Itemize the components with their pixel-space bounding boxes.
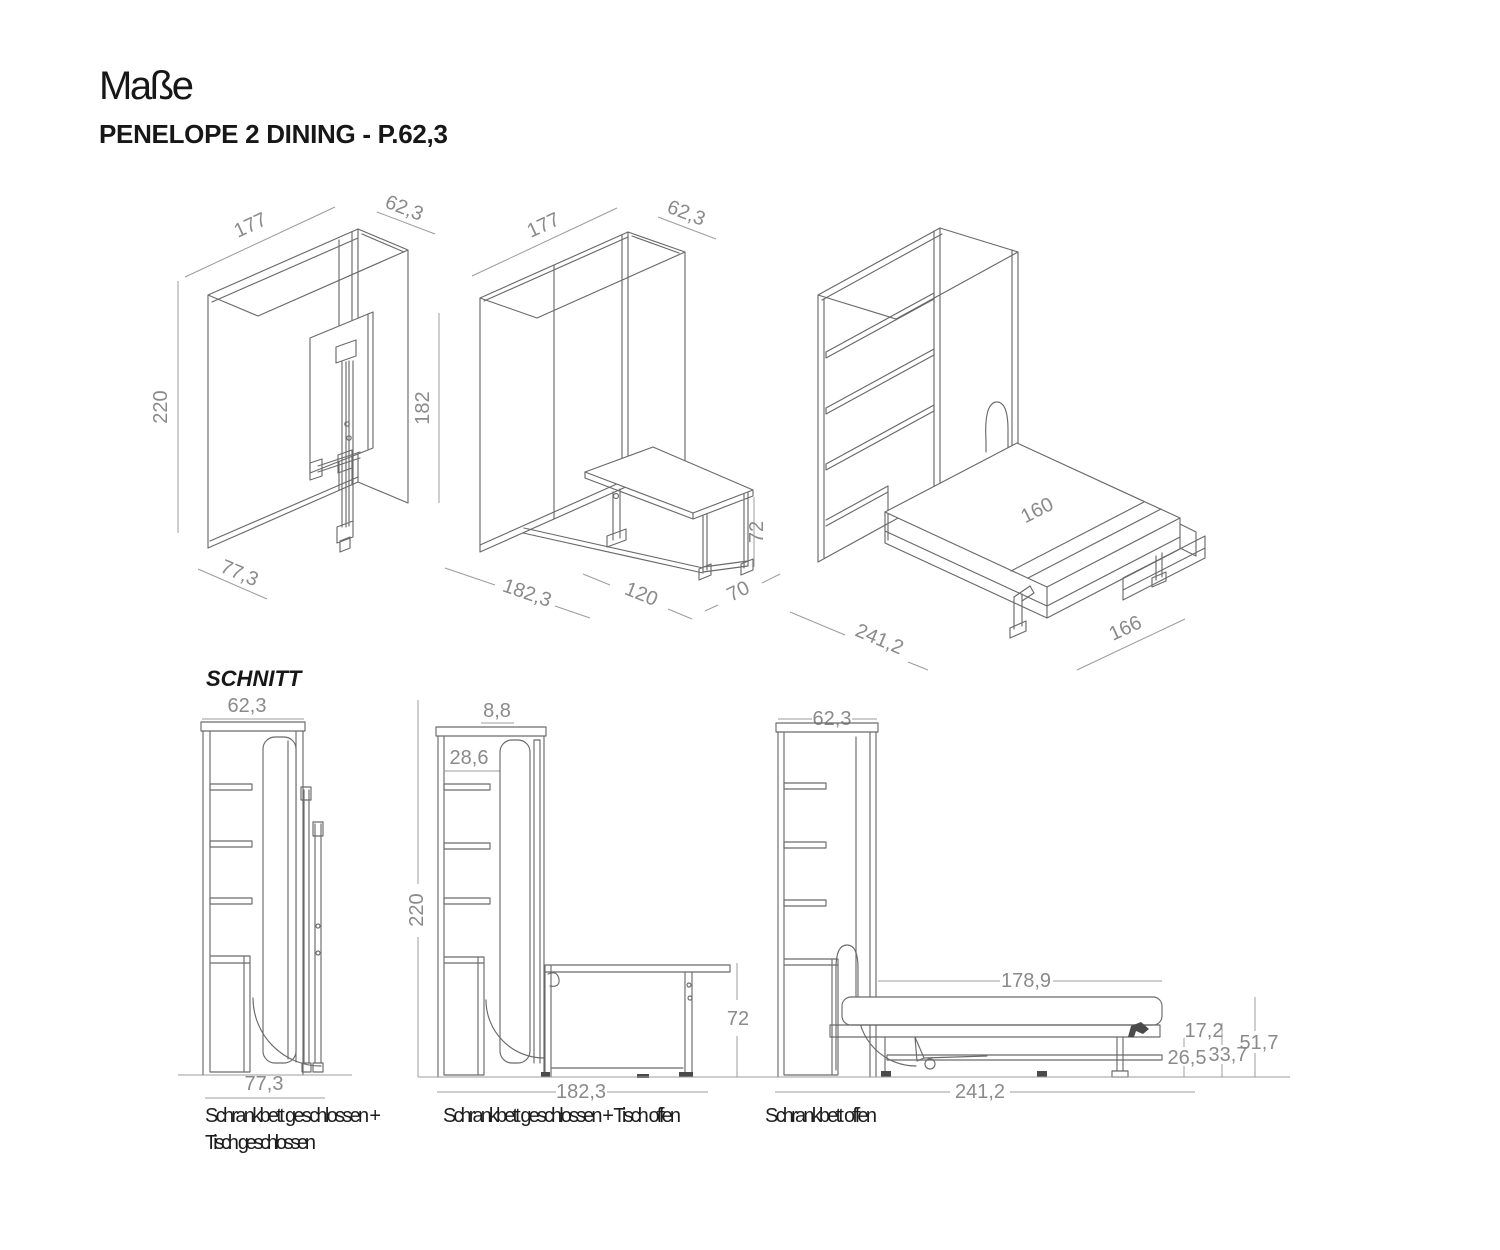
caption: Schrankbett geschlossen + Tisch offen — [443, 1105, 681, 1127]
dim-base-depth: 77,3 — [217, 556, 261, 591]
lower-box — [210, 956, 250, 1072]
dim-shelf-depth: 28,6 — [450, 747, 489, 769]
dim-total-depth: 241,2 — [955, 1081, 1005, 1103]
dim-table-depth: 70 — [724, 577, 754, 607]
dim-panel-height: 182 — [412, 391, 434, 424]
dim-depth: 62,3 — [228, 695, 267, 717]
caption-line2: Tisch geschlossen — [205, 1132, 316, 1154]
bolt-detail — [687, 983, 691, 987]
lower-box — [784, 959, 838, 1075]
dim-depth: 62,3 — [664, 196, 708, 230]
dimension-sheet: Maße PENELOPE 2 DINING - P.62,3 SCHNITT … — [0, 0, 1500, 1250]
view-section-table-open: 220 8,8 28,6 72 182,3 Schrankbett geschl… — [406, 700, 760, 1127]
dim-height: 220 — [406, 893, 428, 926]
dim-depth: 62,3 — [382, 191, 426, 225]
bed-foot — [1037, 1071, 1047, 1077]
mattress — [842, 997, 1162, 1025]
bed-platform — [830, 1025, 1160, 1037]
bed-leg — [1112, 1037, 1128, 1077]
view-section-bed-open: 62,3 178,9 17,2 26,5 33,7 51,7 241,2 Sch… — [755, 708, 1290, 1127]
pivot-detail — [614, 494, 619, 499]
dim-base-depth: 77,3 — [245, 1073, 284, 1095]
shelves — [784, 783, 826, 906]
bolt-detail — [688, 996, 692, 1000]
dim-table-height: 72 — [727, 1008, 749, 1030]
view-iso-bed-open: 160 241,2 166 — [790, 228, 1205, 670]
page-subtitle: PENELOPE 2 DINING - P.62,3 — [99, 119, 448, 149]
bed-foot — [881, 1071, 891, 1077]
caption-line1: Schrankbett geschlossen + — [205, 1105, 381, 1127]
view-iso-table-open: 177 62,3 182,3 120 70 72 — [445, 196, 780, 619]
caption: Schrankbett offen — [765, 1105, 877, 1127]
dim-height: 220 — [150, 390, 172, 423]
dim-width: 177 — [231, 209, 271, 243]
bolt-detail — [316, 951, 320, 955]
dim-table-width: 120 — [622, 578, 661, 611]
dim-frame-gap: 17,2 — [1185, 1020, 1224, 1042]
drawing-canvas: Maße PENELOPE 2 DINING - P.62,3 SCHNITT … — [0, 0, 1500, 1250]
dim-top-gap: 8,8 — [483, 700, 511, 722]
bed-panel-edge — [534, 740, 540, 1063]
cabinet-body — [208, 229, 408, 548]
dim-width: 177 — [524, 209, 564, 243]
folded-table-panels — [301, 787, 323, 1072]
bed-panel — [263, 737, 296, 1063]
view-section-closed: 62,3 77,3 Schrankbett geschlossen + Tisc… — [178, 695, 381, 1154]
section-label: SCHNITT — [206, 666, 303, 691]
dim-total-depth: 241,2 — [852, 620, 907, 660]
shelves — [444, 784, 490, 904]
view-iso-closed: 177 62,3 220 182 77,3 — [150, 191, 439, 599]
shelves — [210, 784, 252, 904]
dim-table-height: 26,5 — [1168, 1047, 1207, 1069]
dim-bed-length: 178,9 — [1001, 970, 1051, 992]
dim-base-depth: 182,3 — [500, 575, 554, 612]
table-foot — [541, 1072, 550, 1077]
dim-bed-height: 51,7 — [1240, 1032, 1279, 1054]
lower-box — [444, 957, 484, 1075]
fold-mechanism — [885, 1037, 987, 1071]
bed-panel — [500, 740, 530, 1063]
open-table — [545, 965, 730, 1077]
page-title: Maße — [99, 64, 194, 108]
dim-table-height: 72 — [746, 521, 768, 543]
bolt-detail — [316, 924, 320, 928]
dim-depth: 62,3 — [813, 708, 852, 730]
dim-base-depth: 182,3 — [556, 1081, 606, 1103]
table-foot — [679, 1072, 693, 1077]
